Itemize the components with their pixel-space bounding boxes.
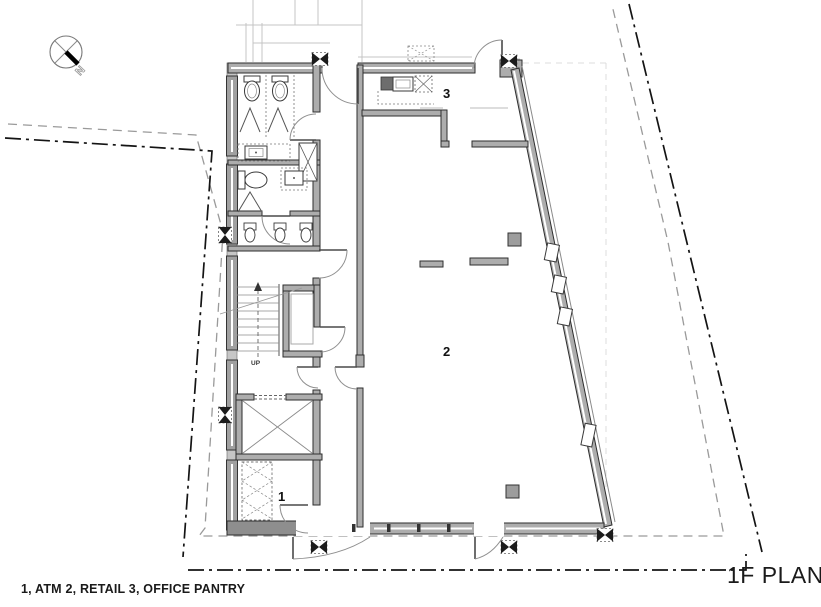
- pantry-wall: [362, 110, 447, 116]
- plan-title: 1F PLAN: [727, 562, 821, 589]
- entry-door-northwest: [322, 68, 358, 104]
- corridor-door: [335, 367, 357, 389]
- toilet-icon: [245, 172, 267, 188]
- floor-plan-page: N: [0, 0, 821, 607]
- stair-direction-arrow: [254, 282, 262, 291]
- toilet-icon: [244, 76, 260, 101]
- stair-hall-door: [319, 250, 347, 278]
- setback-line: [8, 5, 724, 536]
- south-storefront: [227, 520, 604, 536]
- toilet-icon: [272, 76, 288, 101]
- east-curtain-wall: [511, 66, 615, 527]
- door-swings: [262, 40, 503, 559]
- up-label: UP: [251, 360, 261, 367]
- column: [506, 485, 519, 498]
- compass-north-label: N: [73, 64, 87, 78]
- canopy-outline: [236, 0, 520, 62]
- room-label-retail: 2: [443, 344, 450, 359]
- urinal-icon: [244, 223, 256, 242]
- shaft-room: [283, 285, 322, 357]
- column-marker: [597, 529, 613, 542]
- shaft-room-door: [320, 327, 345, 352]
- column-marker: [501, 55, 517, 68]
- entry-door-northeast: [474, 40, 502, 68]
- urinal-icon: [300, 223, 312, 242]
- atm-room-fixture: [242, 462, 272, 520]
- column-marker: [219, 407, 232, 423]
- west-wall: [227, 63, 238, 535]
- storefront-door-left: [293, 537, 370, 559]
- column-marker: [501, 541, 517, 554]
- room-label-atm: 1: [278, 489, 285, 504]
- north-arrow: N: [50, 36, 88, 78]
- elevator-shaft: [236, 394, 322, 460]
- floor-plan-drawing: N: [0, 0, 821, 607]
- room-legend: 1, ATM 2, RETAIL 3, OFFICE PANTRY: [21, 582, 245, 596]
- column-marker: [312, 53, 328, 66]
- column-marker: [219, 227, 232, 243]
- urinal-icon: [274, 223, 286, 242]
- column-marker: [311, 541, 327, 554]
- ceiling-unit: [408, 46, 434, 61]
- room-label-pantry: 3: [443, 86, 450, 101]
- storefront-door-right: [475, 537, 503, 559]
- corridor-wall: [357, 65, 363, 355]
- columns: [506, 233, 521, 498]
- column: [508, 233, 521, 246]
- north-wall: [228, 60, 522, 77]
- elevator-lobby-door: [297, 367, 318, 388]
- interior-walls: [228, 65, 528, 527]
- toilet-tank: [238, 171, 245, 189]
